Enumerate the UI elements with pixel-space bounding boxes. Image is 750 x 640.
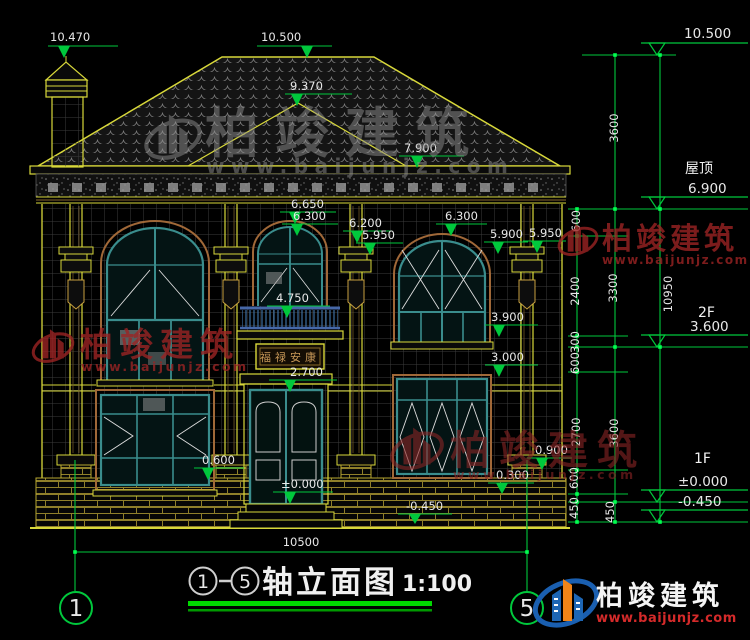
elevation-value: 2.700 xyxy=(290,365,323,379)
elevation-value: 6.300 xyxy=(293,209,326,223)
title-underline xyxy=(188,601,432,606)
balcony xyxy=(237,308,343,339)
watermark-url: www.baijunjz.com xyxy=(453,467,637,482)
level-value: -0.450 xyxy=(678,494,722,510)
floor-2-label: 2F xyxy=(698,305,715,321)
watermark-url: www.baijunjz.com xyxy=(602,253,749,267)
watermark-name: 柏竣建筑 xyxy=(602,222,738,257)
door-step xyxy=(246,504,326,512)
roof-label: 屋顶 xyxy=(685,161,713,177)
title-axis-to: 5 xyxy=(239,571,251,593)
drawing-scale: 1:100 xyxy=(402,572,472,597)
dentil-row xyxy=(46,183,550,192)
watermark-url: www.baijunjz.com xyxy=(81,359,249,374)
elevation-value: 0.600 xyxy=(202,453,235,467)
watermark-url: www.baijunjz.com xyxy=(206,154,514,178)
axis-bubble-left-number: 1 xyxy=(69,596,84,622)
vertical-dim-value: 2400 xyxy=(568,276,582,305)
title-underline-thin xyxy=(188,609,432,612)
title-axis-from: 1 xyxy=(197,571,209,593)
footer-logo: 柏竣建筑 www.baijunjz.com xyxy=(529,572,737,633)
elevation-value: 3.000 xyxy=(491,350,524,364)
door-step xyxy=(238,512,334,520)
elevation-value: 5.900 xyxy=(490,227,523,241)
elevation-value: 5.950 xyxy=(529,226,562,240)
elevation-value: 6.300 xyxy=(445,209,478,223)
axis-bubble-right-number: 5 xyxy=(520,596,535,622)
vertical-dim-value: 3300 xyxy=(606,273,620,302)
company-name: 柏竣建筑 xyxy=(596,580,724,612)
elevation-value: 10.500 xyxy=(261,30,301,44)
level-value: 3.600 xyxy=(690,319,729,335)
vertical-dim-value: 10950 xyxy=(661,276,675,313)
elevation-drawing: 福禄安康 xyxy=(0,0,750,640)
cad-canvas: 福禄安康 xyxy=(0,0,750,640)
elevation-value: 4.750 xyxy=(276,291,309,305)
elevation-value: 3.900 xyxy=(491,310,524,324)
vertical-dim-value: 450 xyxy=(603,501,617,523)
vertical-dim-value: 600 xyxy=(568,352,582,374)
elevation-value: 10.470 xyxy=(50,30,90,44)
window-1f-left xyxy=(93,390,217,496)
drawing-title: 轴立面图 xyxy=(262,565,398,601)
floor-1-label: 1F xyxy=(694,451,711,467)
door-step xyxy=(230,520,342,528)
vertical-dim-value: 300 xyxy=(568,331,582,353)
plaque-text: 福禄安康 xyxy=(260,350,320,364)
level-value: 6.900 xyxy=(688,181,727,197)
level-value: 10.500 xyxy=(684,26,731,42)
elevation-value: ±0.000 xyxy=(281,477,324,491)
elevation-value: -0.450 xyxy=(406,499,443,513)
vertical-dim-value: 450 xyxy=(567,497,581,519)
vertical-dim-value: 3600 xyxy=(607,113,621,142)
elevation-value: 9.370 xyxy=(290,79,323,93)
elevation-value: 5.950 xyxy=(362,228,395,242)
overall-width-dim: 10500 xyxy=(283,535,320,549)
company-url: www.baijunjz.com xyxy=(596,611,737,626)
level-value: ±0.000 xyxy=(678,474,728,490)
